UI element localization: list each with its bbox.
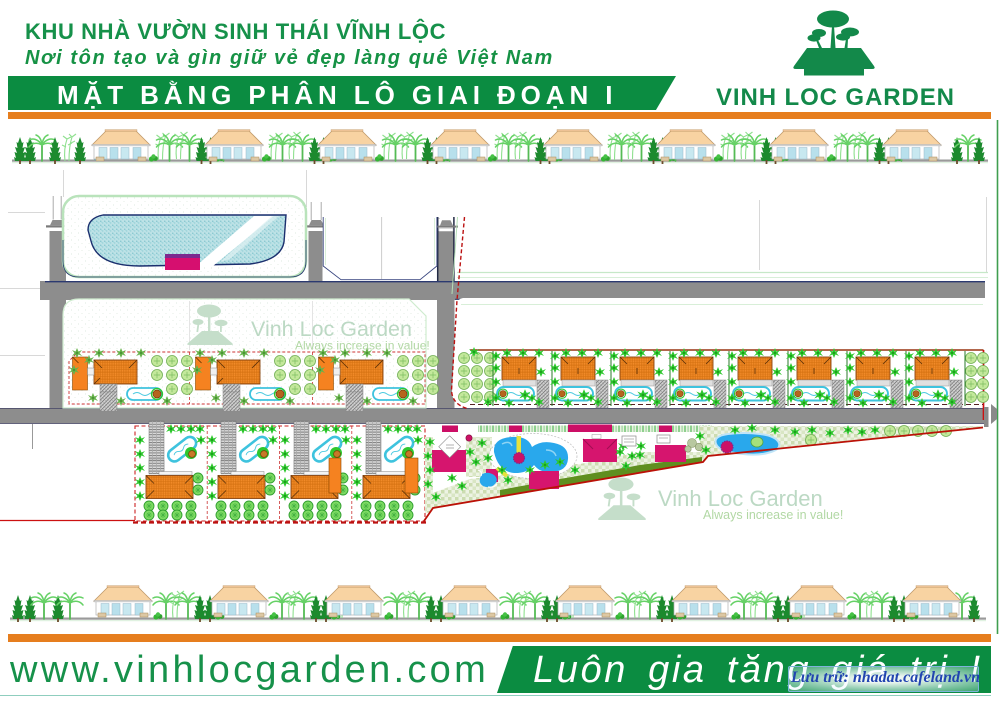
svg-text:Always increase in value!: Always increase in value! <box>703 508 843 522</box>
svg-text:Vinh Loc Garden: Vinh Loc Garden <box>251 317 412 341</box>
